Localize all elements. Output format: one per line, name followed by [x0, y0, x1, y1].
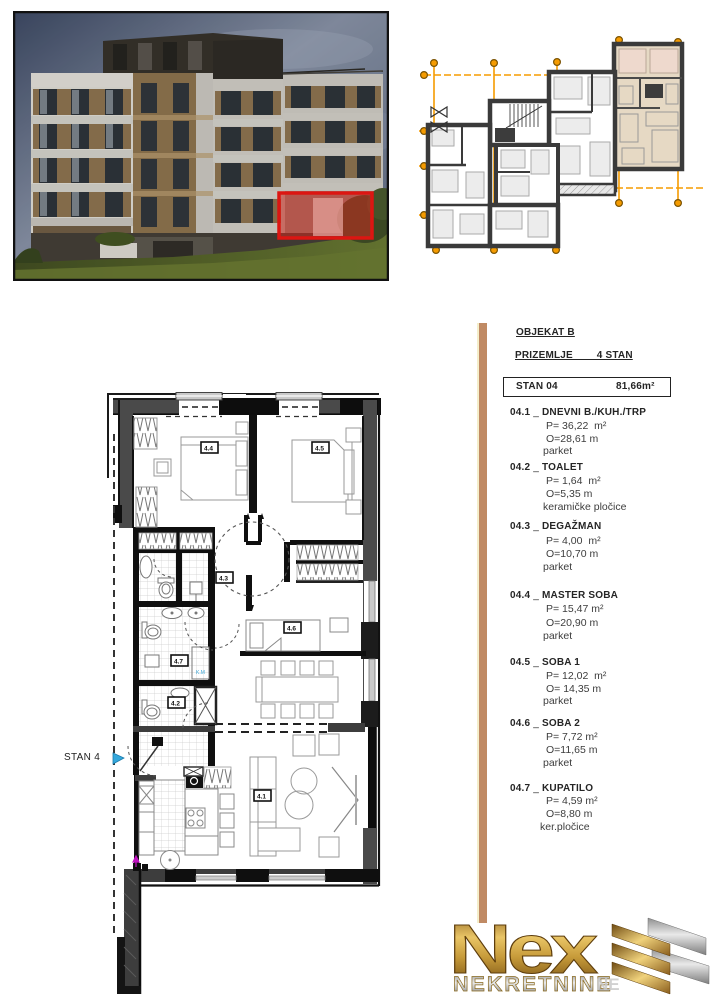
svg-text:STAN 4: STAN 4 — [64, 752, 100, 763]
svg-text:4.2: 4.2 — [171, 701, 180, 708]
svg-text:NE: NE — [596, 975, 620, 994]
svg-text:K.M: K.M — [196, 670, 205, 676]
svg-text:4.5: 4.5 — [315, 446, 324, 453]
svg-text:4.3: 4.3 — [219, 576, 228, 583]
svg-text:4.6: 4.6 — [287, 626, 296, 633]
svg-text:4.7: 4.7 — [174, 659, 183, 666]
svg-text:4.1: 4.1 — [257, 794, 266, 801]
svg-text:4.4: 4.4 — [204, 446, 213, 453]
svg-text:NEKRETNINE: NEKRETNINE — [453, 972, 613, 996]
